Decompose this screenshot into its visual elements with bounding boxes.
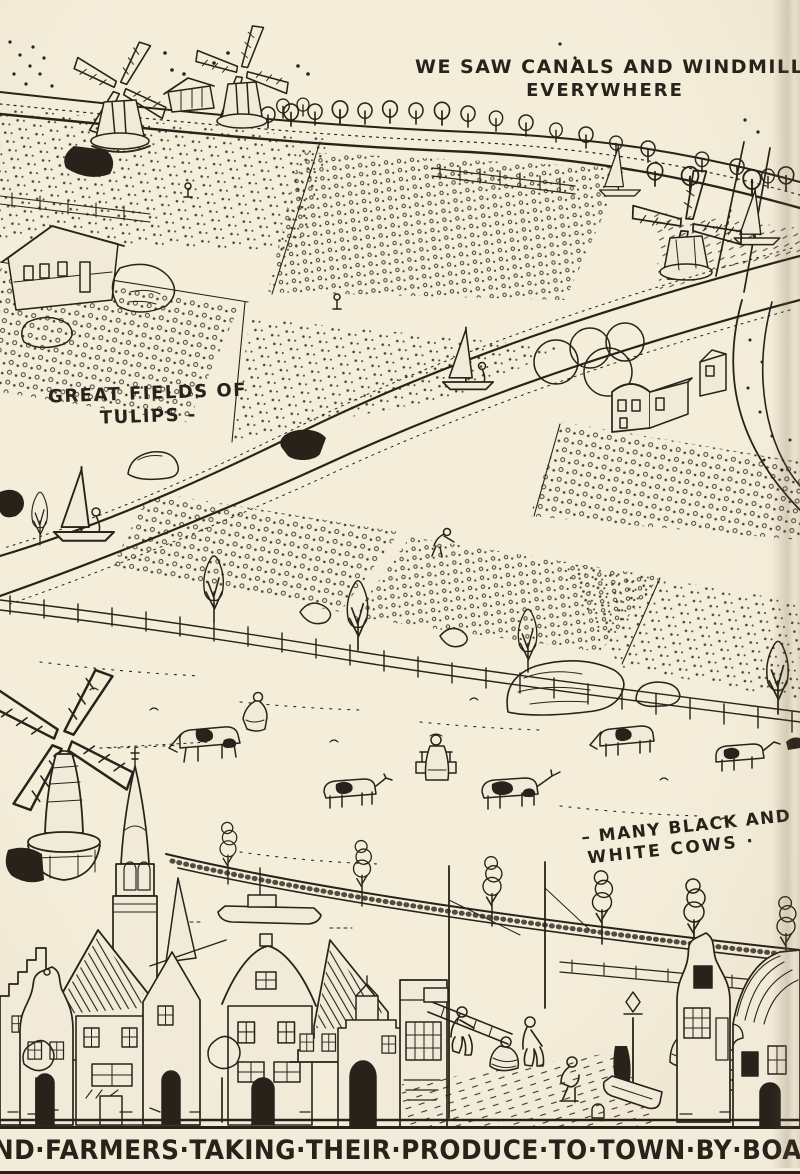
footer-caption-band: AND·FARMERS·TAKING·THEIR·PRODUCE·TO·TOWN… [0,1126,800,1174]
house-broad-roof-right [733,950,800,1127]
cow-grazing-left [169,727,240,762]
barn-top-left [164,78,214,112]
barge-lower-canal [176,868,352,928]
caption-canals-line2: EVERYWHERE [415,80,795,103]
cow-grazing-2 [590,726,654,756]
footer-caption-text: AND·FARMERS·TAKING·THEIR·PRODUCE·TO·TOWN… [0,1135,800,1166]
house-tall-front [76,1016,150,1125]
cow-standing-1 [324,774,392,808]
house-dutch-gable-right [677,933,730,1122]
farm-buildings [534,323,726,432]
big-windmill [0,626,210,882]
trees-right-cluster [647,163,793,196]
house-concave-roof [222,934,316,1125]
milkmaid-seated [243,693,267,732]
caption-canals-windmills: WE SAW CANALS AND WINDMILLS EVERYWHERE [415,56,795,102]
book-illustration-page: WE SAW CANALS AND WINDMILLS EVERYWHERE G… [0,0,800,1168]
cow-standing-horns [482,770,560,809]
cows-right-edge [716,738,800,772]
caption-tulip-fields: GREAT FIELDS OF TULIPS - [47,380,248,432]
windmill-top-left-2 [175,5,309,139]
haystack-small-left [128,452,178,480]
caption-canals-line1: WE SAW CANALS AND WINDMILLS [415,56,795,80]
house-arch-door [338,1020,404,1127]
sailboat-left-canal [0,467,114,545]
milkmaid-yoke [416,734,456,780]
holland-scene-drawing [0,0,800,1168]
